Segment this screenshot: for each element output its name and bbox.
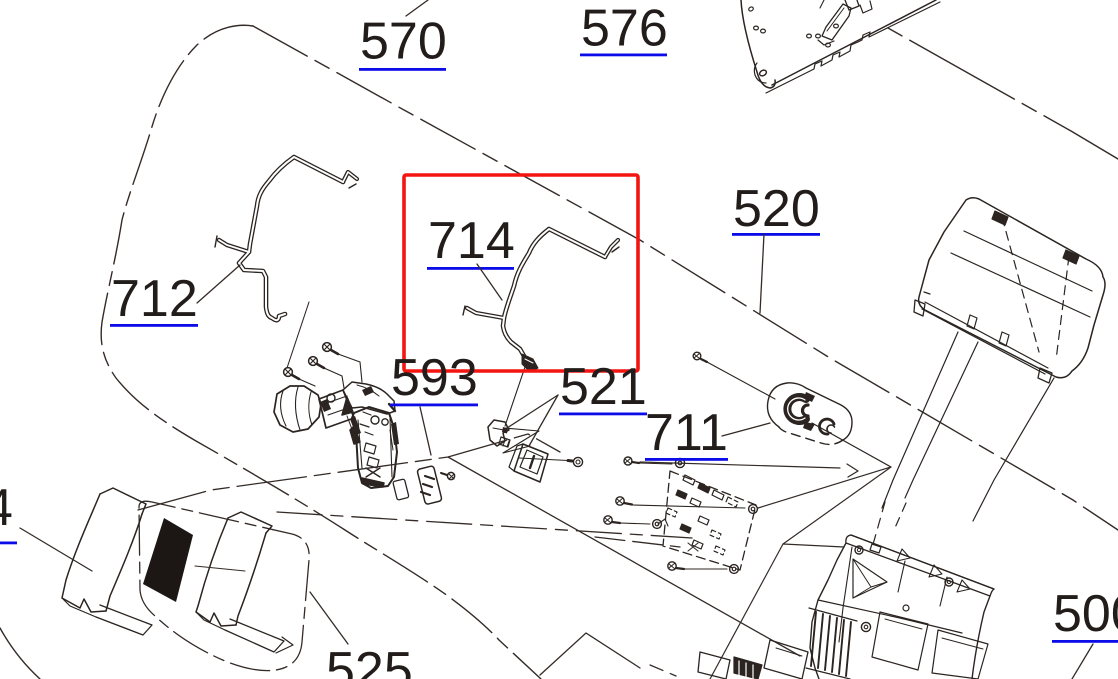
svg-text:711: 711 xyxy=(645,404,728,462)
svg-text:4: 4 xyxy=(0,479,13,537)
svg-text:714: 714 xyxy=(428,212,515,270)
svg-text:525: 525 xyxy=(326,642,413,679)
svg-text:521: 521 xyxy=(560,358,647,416)
svg-text:570: 570 xyxy=(360,13,447,71)
svg-text:500: 500 xyxy=(1053,585,1118,643)
svg-text:576: 576 xyxy=(581,0,668,58)
svg-text:712: 712 xyxy=(111,270,198,328)
svg-text:520: 520 xyxy=(733,180,820,238)
svg-text:593: 593 xyxy=(391,349,478,407)
